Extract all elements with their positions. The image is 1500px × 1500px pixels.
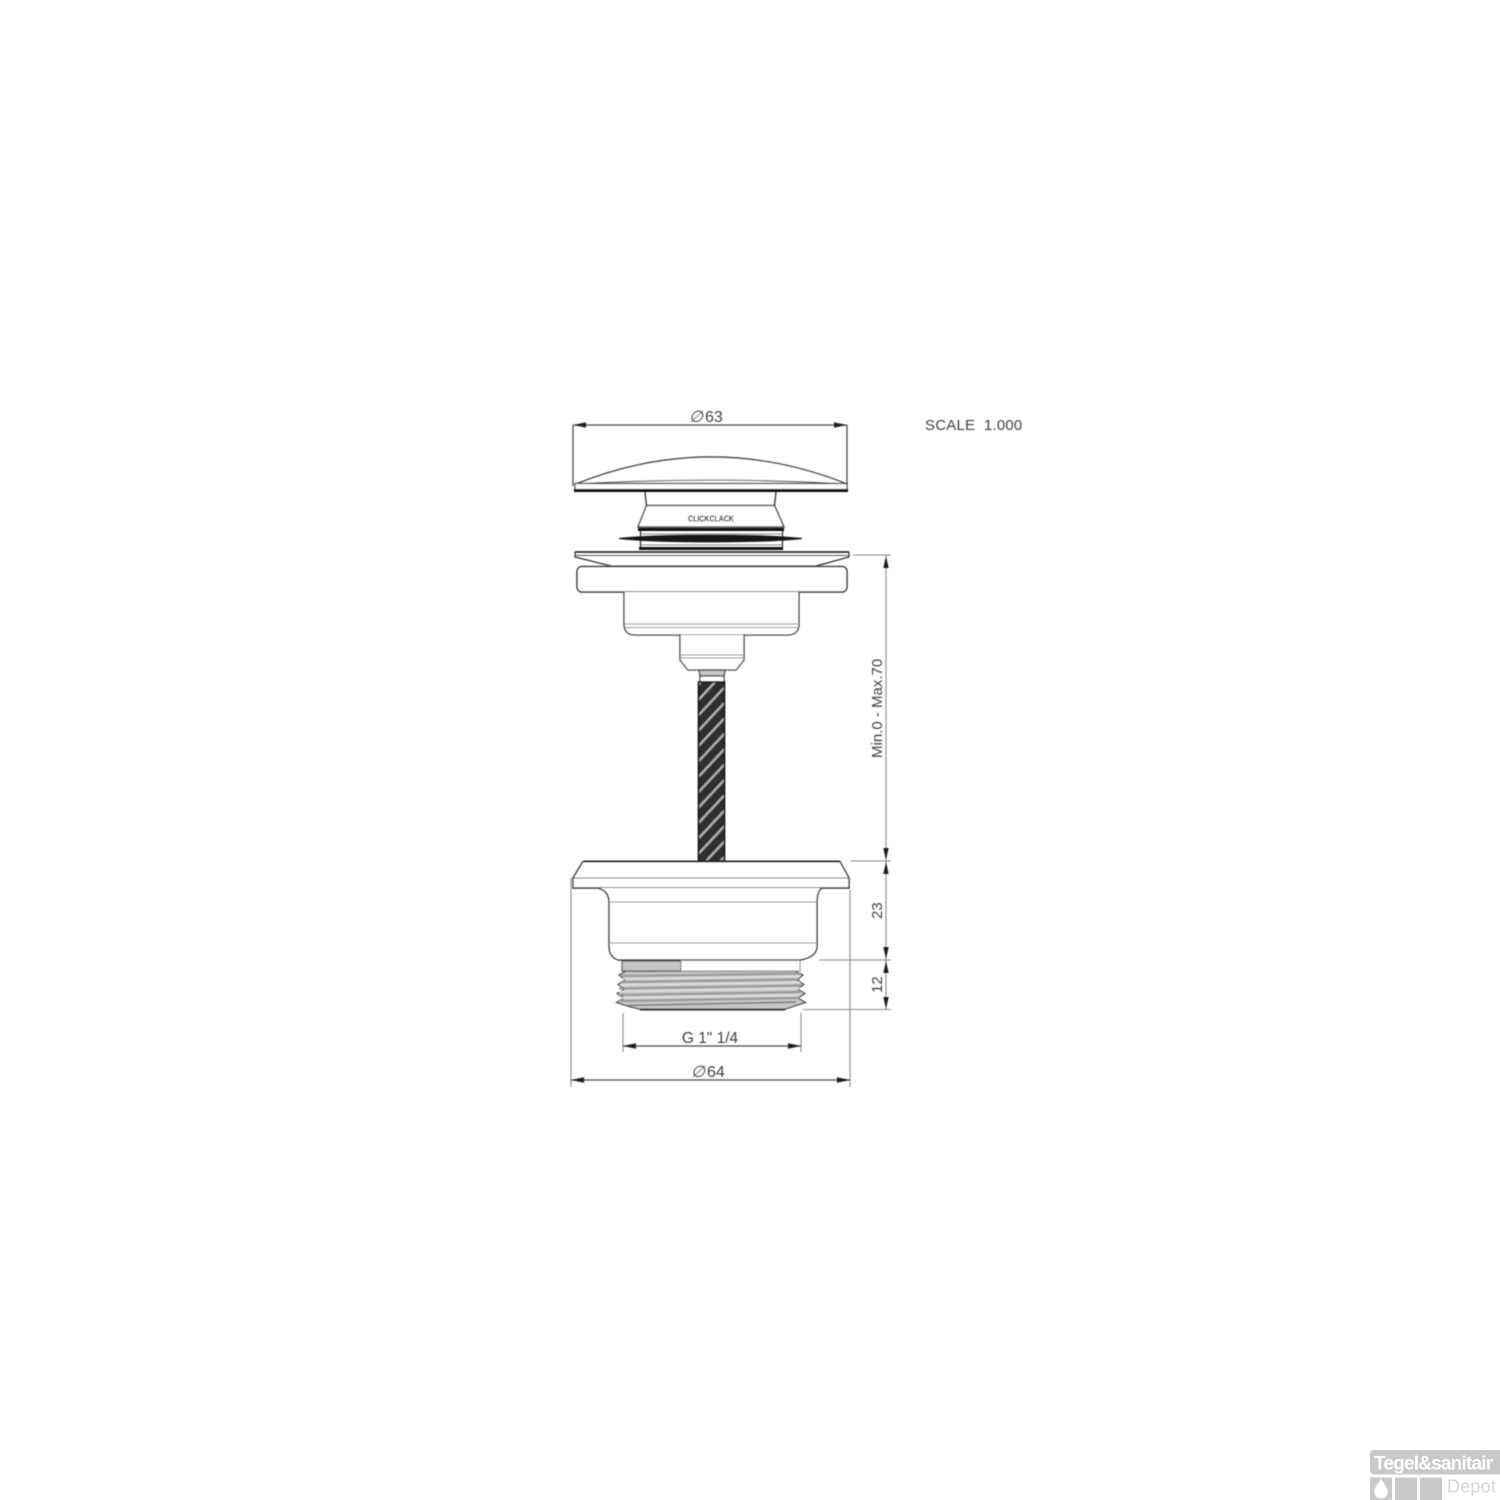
svg-text:Depot: Depot <box>1447 1477 1496 1497</box>
svg-text:CLICKCLACK: CLICKCLACK <box>688 514 735 524</box>
svg-text:64: 64 <box>707 1064 725 1081</box>
svg-text:63: 63 <box>705 409 723 426</box>
svg-text:G 1" 1/4: G 1" 1/4 <box>682 1030 739 1047</box>
svg-text:Tegel&sanitair: Tegel&sanitair <box>1374 1454 1494 1475</box>
svg-text:12: 12 <box>869 976 886 993</box>
svg-text:Min.0 - Max.70: Min.0 - Max.70 <box>869 659 886 758</box>
svg-text:SCALE 1.000: SCALE 1.000 <box>925 417 1022 434</box>
svg-text:23: 23 <box>869 902 886 919</box>
svg-text:∅: ∅ <box>691 1064 706 1081</box>
svg-text:∅: ∅ <box>689 409 704 426</box>
